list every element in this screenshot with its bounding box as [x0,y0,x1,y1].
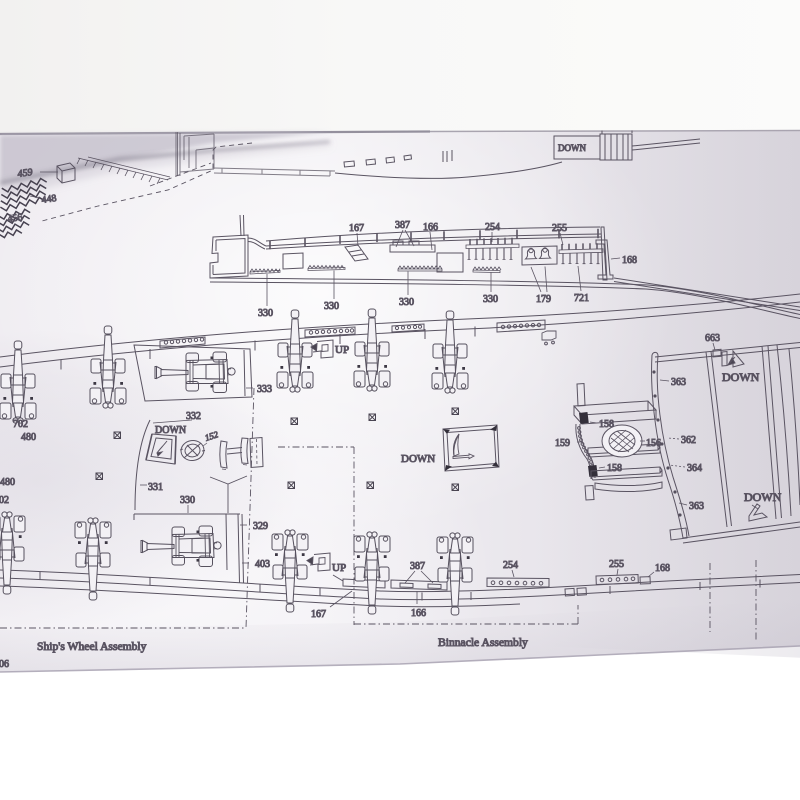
svg-text:Binnacle Assembly: Binnacle Assembly [438,636,528,649]
svg-text:333: 333 [257,384,272,395]
svg-text:329: 329 [253,521,268,532]
svg-text:459: 459 [17,167,33,180]
svg-text:158: 158 [599,419,614,430]
svg-text:158: 158 [607,463,622,474]
svg-text:330: 330 [483,294,498,305]
svg-text:330: 330 [180,495,195,506]
svg-text:387: 387 [410,561,425,572]
svg-text:159: 159 [555,438,570,449]
svg-text:330: 330 [399,297,414,308]
svg-text:363: 363 [689,501,704,512]
svg-text:166: 166 [423,222,438,233]
svg-text:168: 168 [655,563,670,574]
svg-text:166: 166 [411,608,426,619]
svg-text:387: 387 [395,220,410,231]
svg-text:364: 364 [687,463,702,474]
svg-text:Ship's Wheel Assembly: Ship's Wheel Assembly [37,640,147,653]
svg-text:DOWN: DOWN [722,370,760,384]
svg-text:663: 663 [705,333,720,344]
svg-text:702: 702 [13,419,28,430]
svg-text:403: 403 [255,559,270,570]
svg-text:255: 255 [552,223,567,234]
svg-text:167: 167 [349,223,364,234]
svg-text:331: 331 [148,482,163,493]
svg-text:330: 330 [324,301,339,312]
svg-text:480: 480 [21,432,36,443]
svg-text:167: 167 [311,609,326,620]
svg-text:448: 448 [41,193,57,206]
svg-text:330: 330 [258,308,273,319]
svg-text:DOWN: DOWN [744,490,782,504]
svg-text:363: 363 [671,377,686,388]
svg-text:DOWN: DOWN [558,143,586,153]
svg-text:UP: UP [335,344,349,356]
svg-text:702: 702 [0,495,9,506]
svg-text:721: 721 [574,293,589,304]
svg-text:179: 179 [536,294,551,305]
svg-text:362: 362 [681,435,696,446]
svg-text:168: 168 [622,255,637,266]
svg-text:506: 506 [0,659,9,670]
svg-text:UP: UP [332,562,346,574]
svg-text:456: 456 [7,212,23,225]
svg-text:480: 480 [0,477,15,488]
svg-text:DOWN: DOWN [401,453,435,465]
svg-text:254: 254 [503,560,518,571]
svg-text:255: 255 [609,559,624,570]
svg-text:254: 254 [485,222,500,233]
